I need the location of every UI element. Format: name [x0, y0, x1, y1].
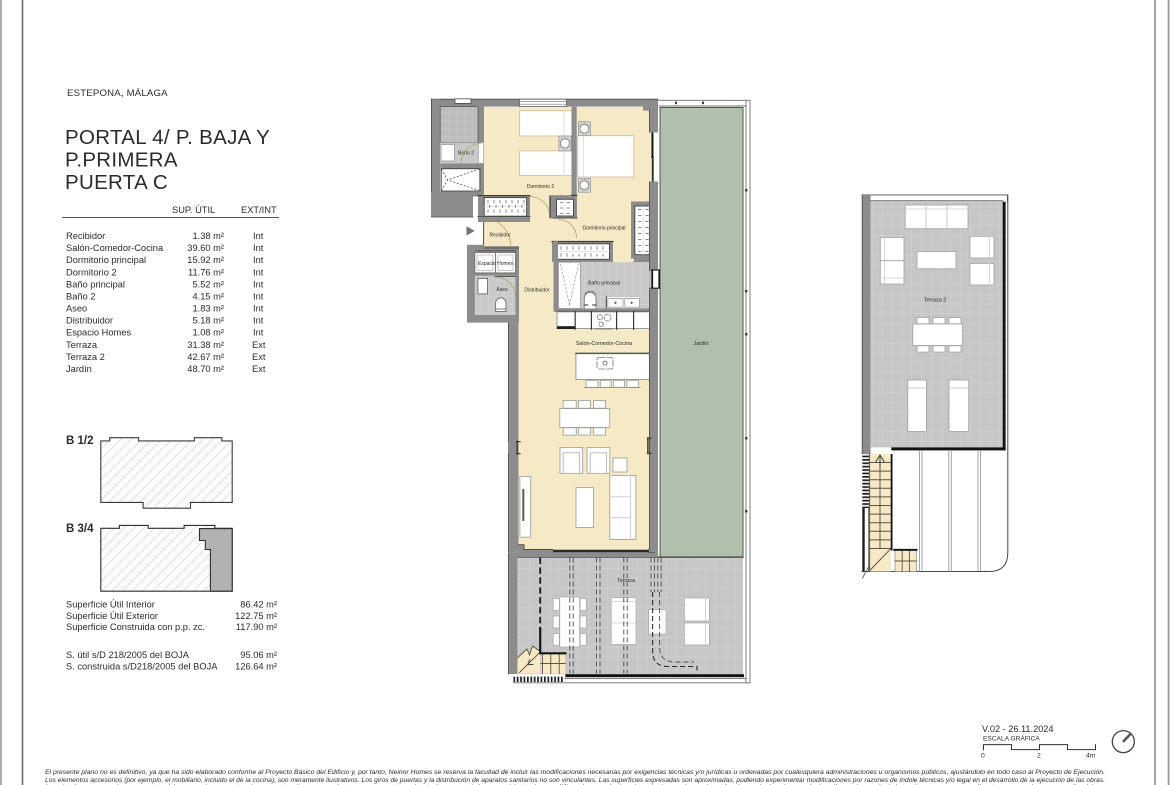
svg-text:El presente plano no es defini: El presente plano no es definitivo, ya q…	[45, 769, 1105, 776]
svg-text:Ext: Ext	[252, 352, 266, 362]
svg-text:95.06 m²: 95.06 m²	[240, 650, 277, 660]
svg-text:15.92 m²: 15.92 m²	[187, 255, 224, 265]
svg-text:Recibidor: Recibidor	[489, 233, 510, 239]
svg-text:0: 0	[981, 753, 985, 760]
svg-text:Espacio Homes: Espacio Homes	[66, 328, 131, 338]
svg-text:ESTEPONA, MÁLAGA: ESTEPONA, MÁLAGA	[67, 88, 168, 99]
svg-text:Int: Int	[253, 255, 264, 265]
svg-text:31.38 m²: 31.38 m²	[187, 340, 224, 350]
svg-text:Baño 2: Baño 2	[66, 292, 95, 302]
svg-text:Terraza 2: Terraza 2	[924, 298, 946, 304]
svg-text:EXT/INT: EXT/INT	[241, 205, 277, 215]
svg-text:42.67 m²: 42.67 m²	[187, 352, 224, 362]
svg-text:Int: Int	[253, 231, 264, 241]
svg-text:V.02 - 26.11.2024: V.02 - 26.11.2024	[982, 724, 1054, 734]
svg-text:Int: Int	[253, 243, 264, 253]
svg-text:Dormitorio 2: Dormitorio 2	[66, 267, 117, 277]
svg-text:5.52 m²: 5.52 m²	[192, 279, 224, 289]
svg-text:Int: Int	[253, 328, 264, 338]
svg-text:86.42 m²: 86.42 m²	[240, 600, 277, 610]
svg-text:Distribuidor: Distribuidor	[524, 288, 550, 294]
svg-text:Dormitorio principal: Dormitorio principal	[582, 226, 625, 232]
svg-text:Dormitorio principal: Dormitorio principal	[66, 255, 146, 265]
svg-text:S. útil s/D 218/2005 del BOJA: S. útil s/D 218/2005 del BOJA	[66, 650, 190, 660]
svg-text:Distribuidor: Distribuidor	[66, 316, 113, 326]
svg-text:PORTAL 4/ P. BAJA Y: PORTAL 4/ P. BAJA Y	[65, 126, 270, 149]
svg-text:Superficie Útil Exterior: Superficie Útil Exterior	[66, 611, 158, 621]
svg-text:Dormitorio 2: Dormitorio 2	[527, 184, 554, 190]
svg-text:Terraza 2: Terraza 2	[66, 352, 105, 362]
svg-text:Int: Int	[253, 279, 264, 289]
svg-text:126.64 m²: 126.64 m²	[235, 661, 277, 671]
svg-text:Int: Int	[253, 267, 264, 277]
svg-text:Salón-Comedor-Cocina: Salón-Comedor-Cocina	[66, 243, 164, 253]
svg-text:Baño principal: Baño principal	[66, 279, 125, 289]
svg-text:Recibidor: Recibidor	[66, 231, 105, 241]
svg-text:117.90 m²: 117.90 m²	[236, 622, 277, 632]
svg-text:48.70 m²: 48.70 m²	[187, 364, 224, 374]
svg-text:Ext: Ext	[252, 340, 266, 350]
svg-text:Jardín: Jardín	[694, 341, 709, 347]
svg-text:Terraza: Terraza	[617, 578, 635, 584]
svg-text:Jardín: Jardín	[66, 364, 92, 374]
svg-text:Aseo: Aseo	[496, 287, 508, 293]
svg-text:PUERTA C: PUERTA C	[65, 171, 168, 194]
svg-text:Aseo: Aseo	[66, 304, 87, 314]
svg-text:122.75 m²: 122.75 m²	[235, 611, 277, 621]
svg-text:Terraza: Terraza	[66, 340, 98, 350]
svg-text:B 3/4: B 3/4	[66, 523, 94, 535]
svg-text:5.18 m²: 5.18 m²	[192, 316, 224, 326]
svg-text:Superficie Útil Interior: Superficie Útil Interior	[66, 600, 155, 610]
svg-text:Int: Int	[253, 316, 264, 326]
svg-text:P.PRIMERA: P.PRIMERA	[65, 149, 178, 172]
svg-text:Int: Int	[253, 292, 264, 302]
svg-text:2: 2	[1037, 753, 1041, 760]
svg-text:SUP. ÚTIL: SUP. ÚTIL	[172, 205, 215, 215]
svg-text:1.38 m²: 1.38 m²	[192, 231, 224, 241]
svg-text:Los elementos accesorios (por: Los elementos accesorios (por ejemplo, e…	[45, 777, 1105, 784]
svg-text:Espacio Homes: Espacio Homes	[478, 261, 514, 267]
svg-text:Ext: Ext	[252, 364, 266, 374]
svg-text:ESCALA GRÁFICA: ESCALA GRÁFICA	[983, 734, 1040, 743]
svg-text:1.08 m²: 1.08 m²	[192, 328, 224, 338]
svg-text:Superficie Construida con p.p.: Superficie Construida con p.p. zc.	[66, 622, 205, 632]
svg-text:B 1/2: B 1/2	[66, 435, 94, 447]
svg-text:Salón-Comedor-Cocina: Salón-Comedor-Cocina	[576, 341, 632, 347]
svg-text:Int: Int	[253, 304, 264, 314]
svg-text:Baño 2: Baño 2	[458, 151, 474, 157]
svg-text:S. construida s/D218/2005 del: S. construida s/D218/2005 del BOJA	[66, 661, 218, 671]
svg-text:1.83 m²: 1.83 m²	[192, 304, 224, 314]
svg-text:Baño principal: Baño principal	[588, 281, 620, 287]
svg-text:39.60 m²: 39.60 m²	[187, 243, 224, 253]
svg-text:11.76 m²: 11.76 m²	[188, 267, 224, 277]
svg-text:4m: 4m	[1086, 753, 1096, 760]
svg-text:4.15 m²: 4.15 m²	[192, 292, 224, 302]
